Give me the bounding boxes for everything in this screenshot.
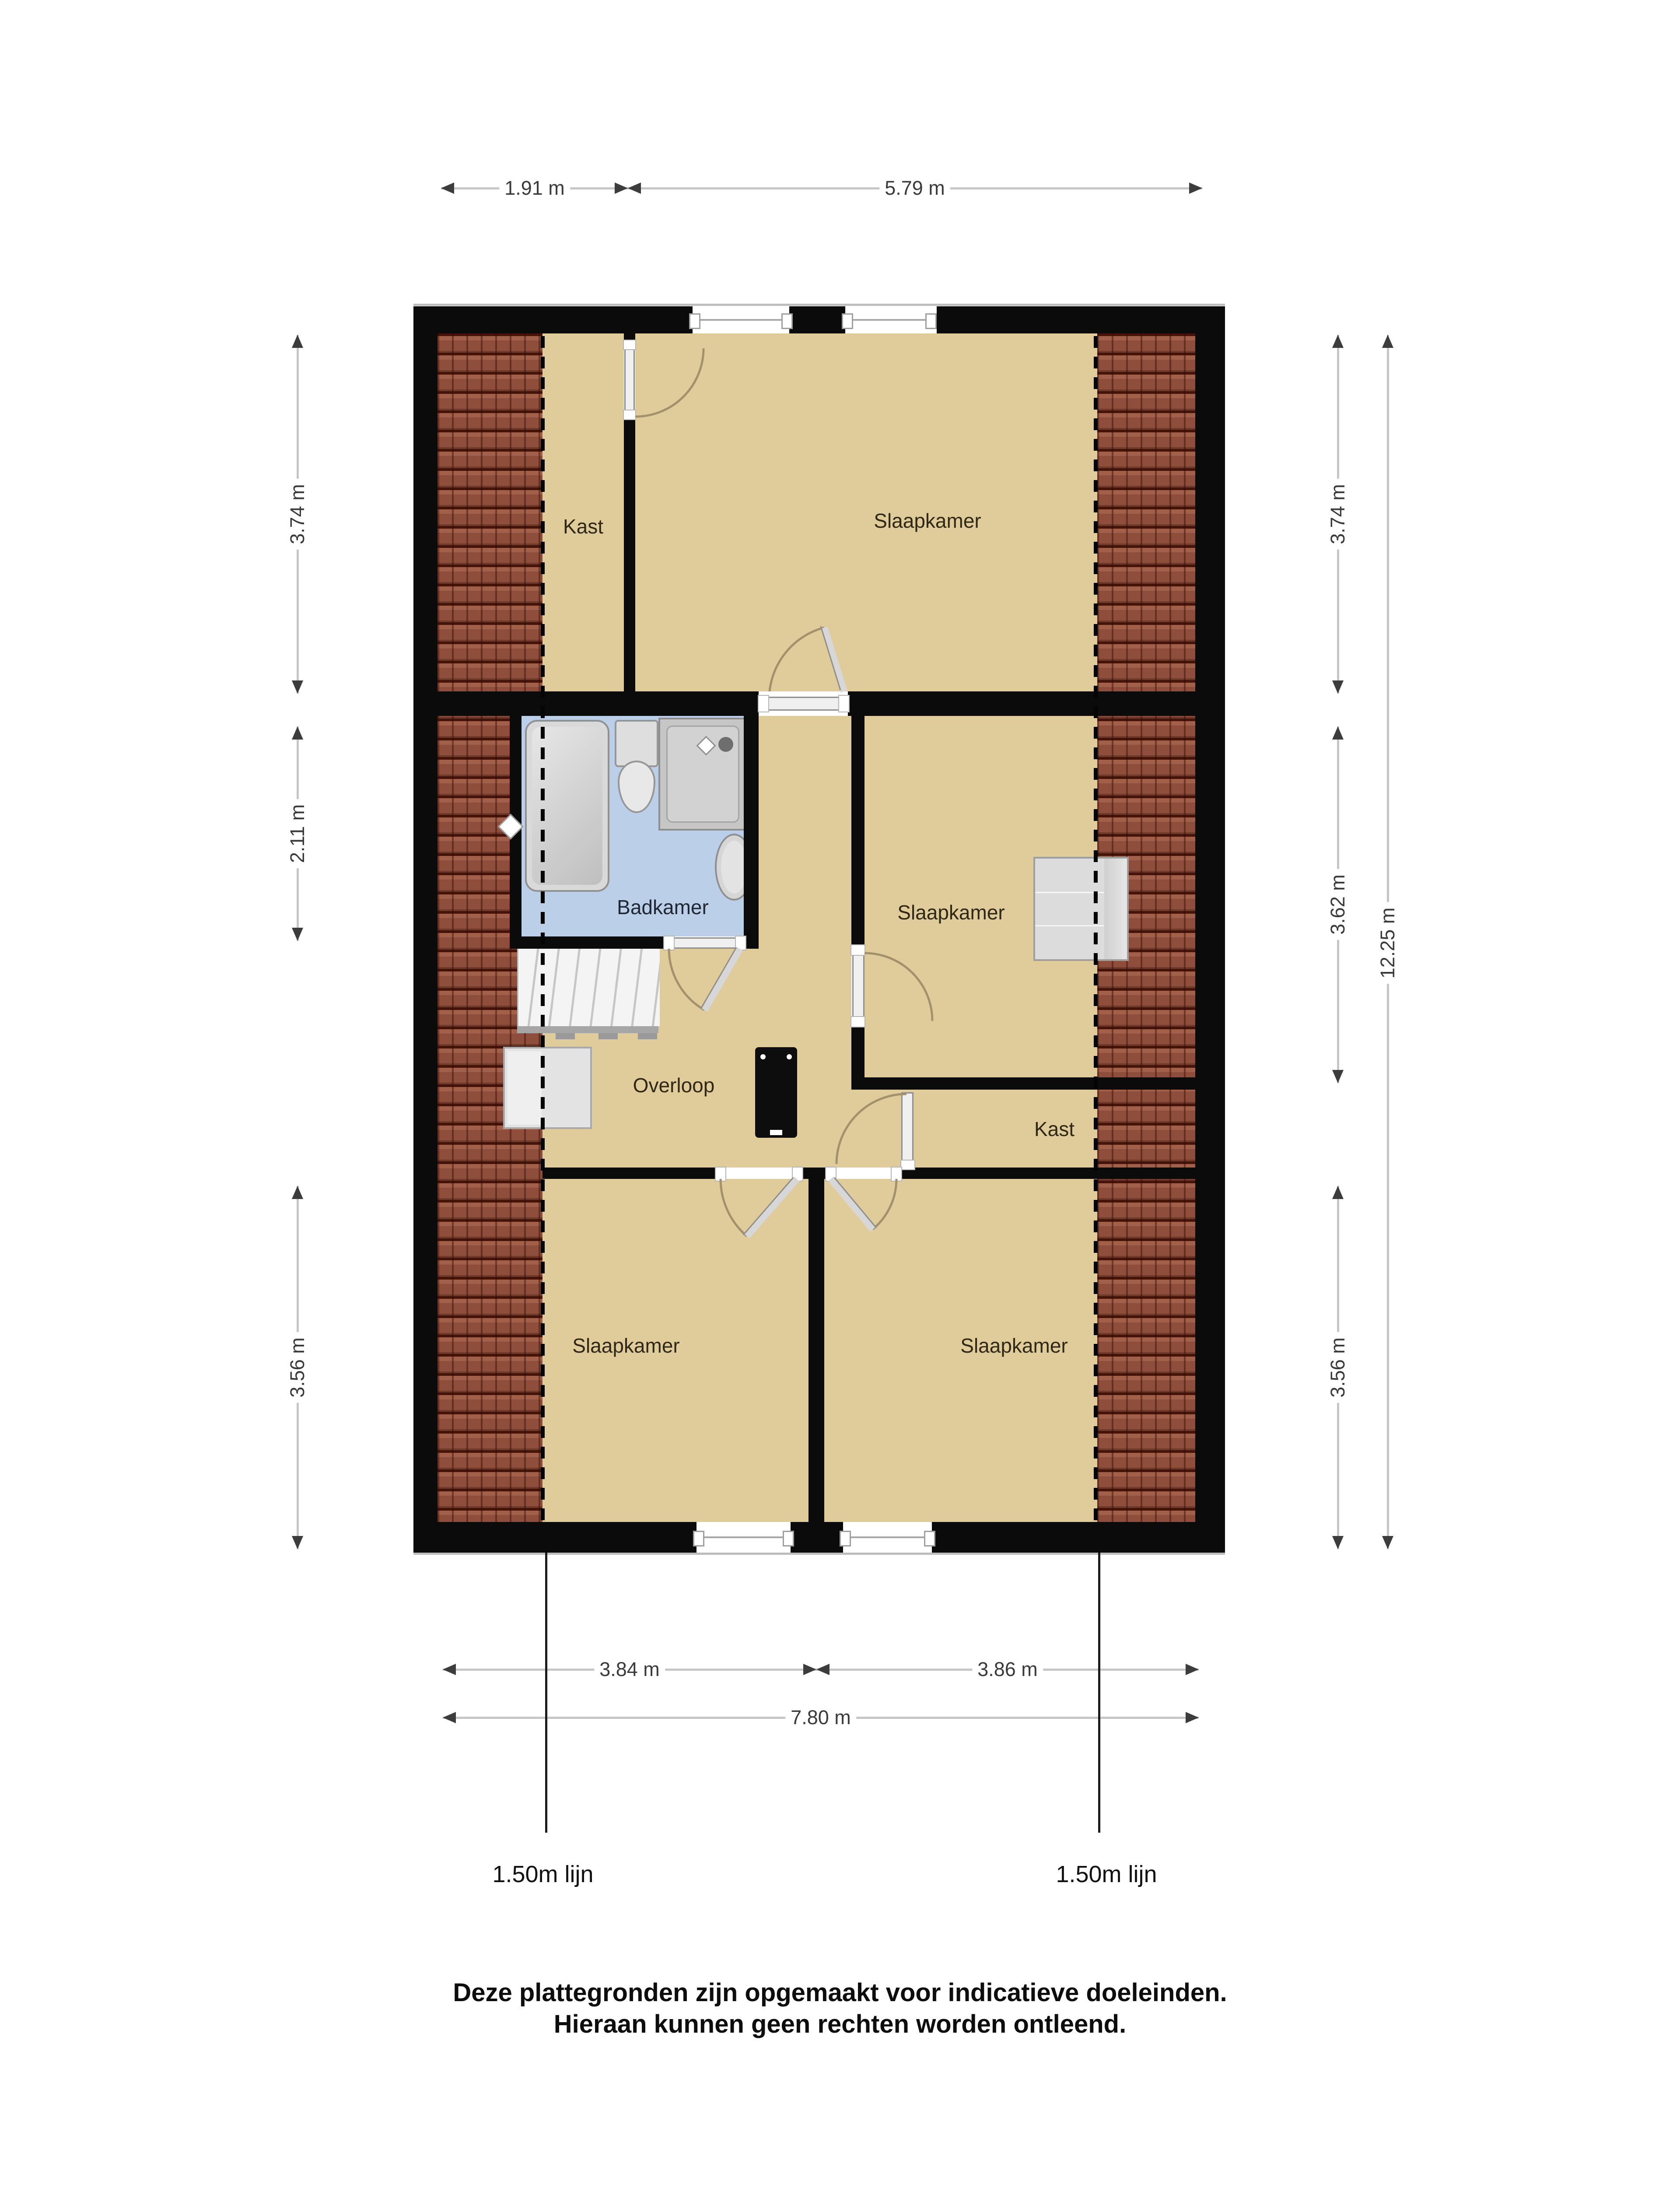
arc-bottom-right-bedroom bbox=[873, 1179, 896, 1229]
arc-kast-top bbox=[635, 348, 703, 417]
leaf-top-bedroom-angled bbox=[824, 628, 844, 691]
leaf-bathroom-angled bbox=[704, 949, 740, 1010]
room-label-slaapkamer-top: Slaapkamer bbox=[874, 509, 981, 533]
arc-top-bedroom bbox=[770, 628, 824, 691]
door-swing-arcs bbox=[0, 0, 1680, 2188]
floorplan-page: Kast Slaapkamer Badkamer Slaapkamer Over… bbox=[0, 0, 1680, 2188]
arc-kast-mid bbox=[836, 1094, 906, 1164]
room-label-slaapkamer-bottom-right: Slaapkamer bbox=[960, 1334, 1067, 1357]
knee-wall-dashed-line-left bbox=[541, 336, 545, 1520]
room-label-slaapkamer-bottom-left: Slaapkamer bbox=[572, 1334, 679, 1357]
room-label-kast-mid: Kast bbox=[1034, 1117, 1074, 1141]
arc-bathroom bbox=[669, 949, 704, 1010]
room-label-kast-top: Kast bbox=[563, 515, 603, 538]
leaf-bottom-right-bedroom bbox=[831, 1179, 873, 1229]
arc-bottom-left-bedroom bbox=[721, 1179, 747, 1236]
room-label-overloop: Overloop bbox=[633, 1073, 715, 1097]
leaf-bottom-left-bedroom bbox=[747, 1179, 797, 1236]
knee-wall-dashed-line-right bbox=[1094, 336, 1098, 1520]
room-label-badkamer: Badkamer bbox=[617, 895, 709, 919]
room-label-slaapkamer-mid: Slaapkamer bbox=[897, 901, 1004, 924]
arc-mid-bedroom bbox=[864, 953, 932, 1021]
